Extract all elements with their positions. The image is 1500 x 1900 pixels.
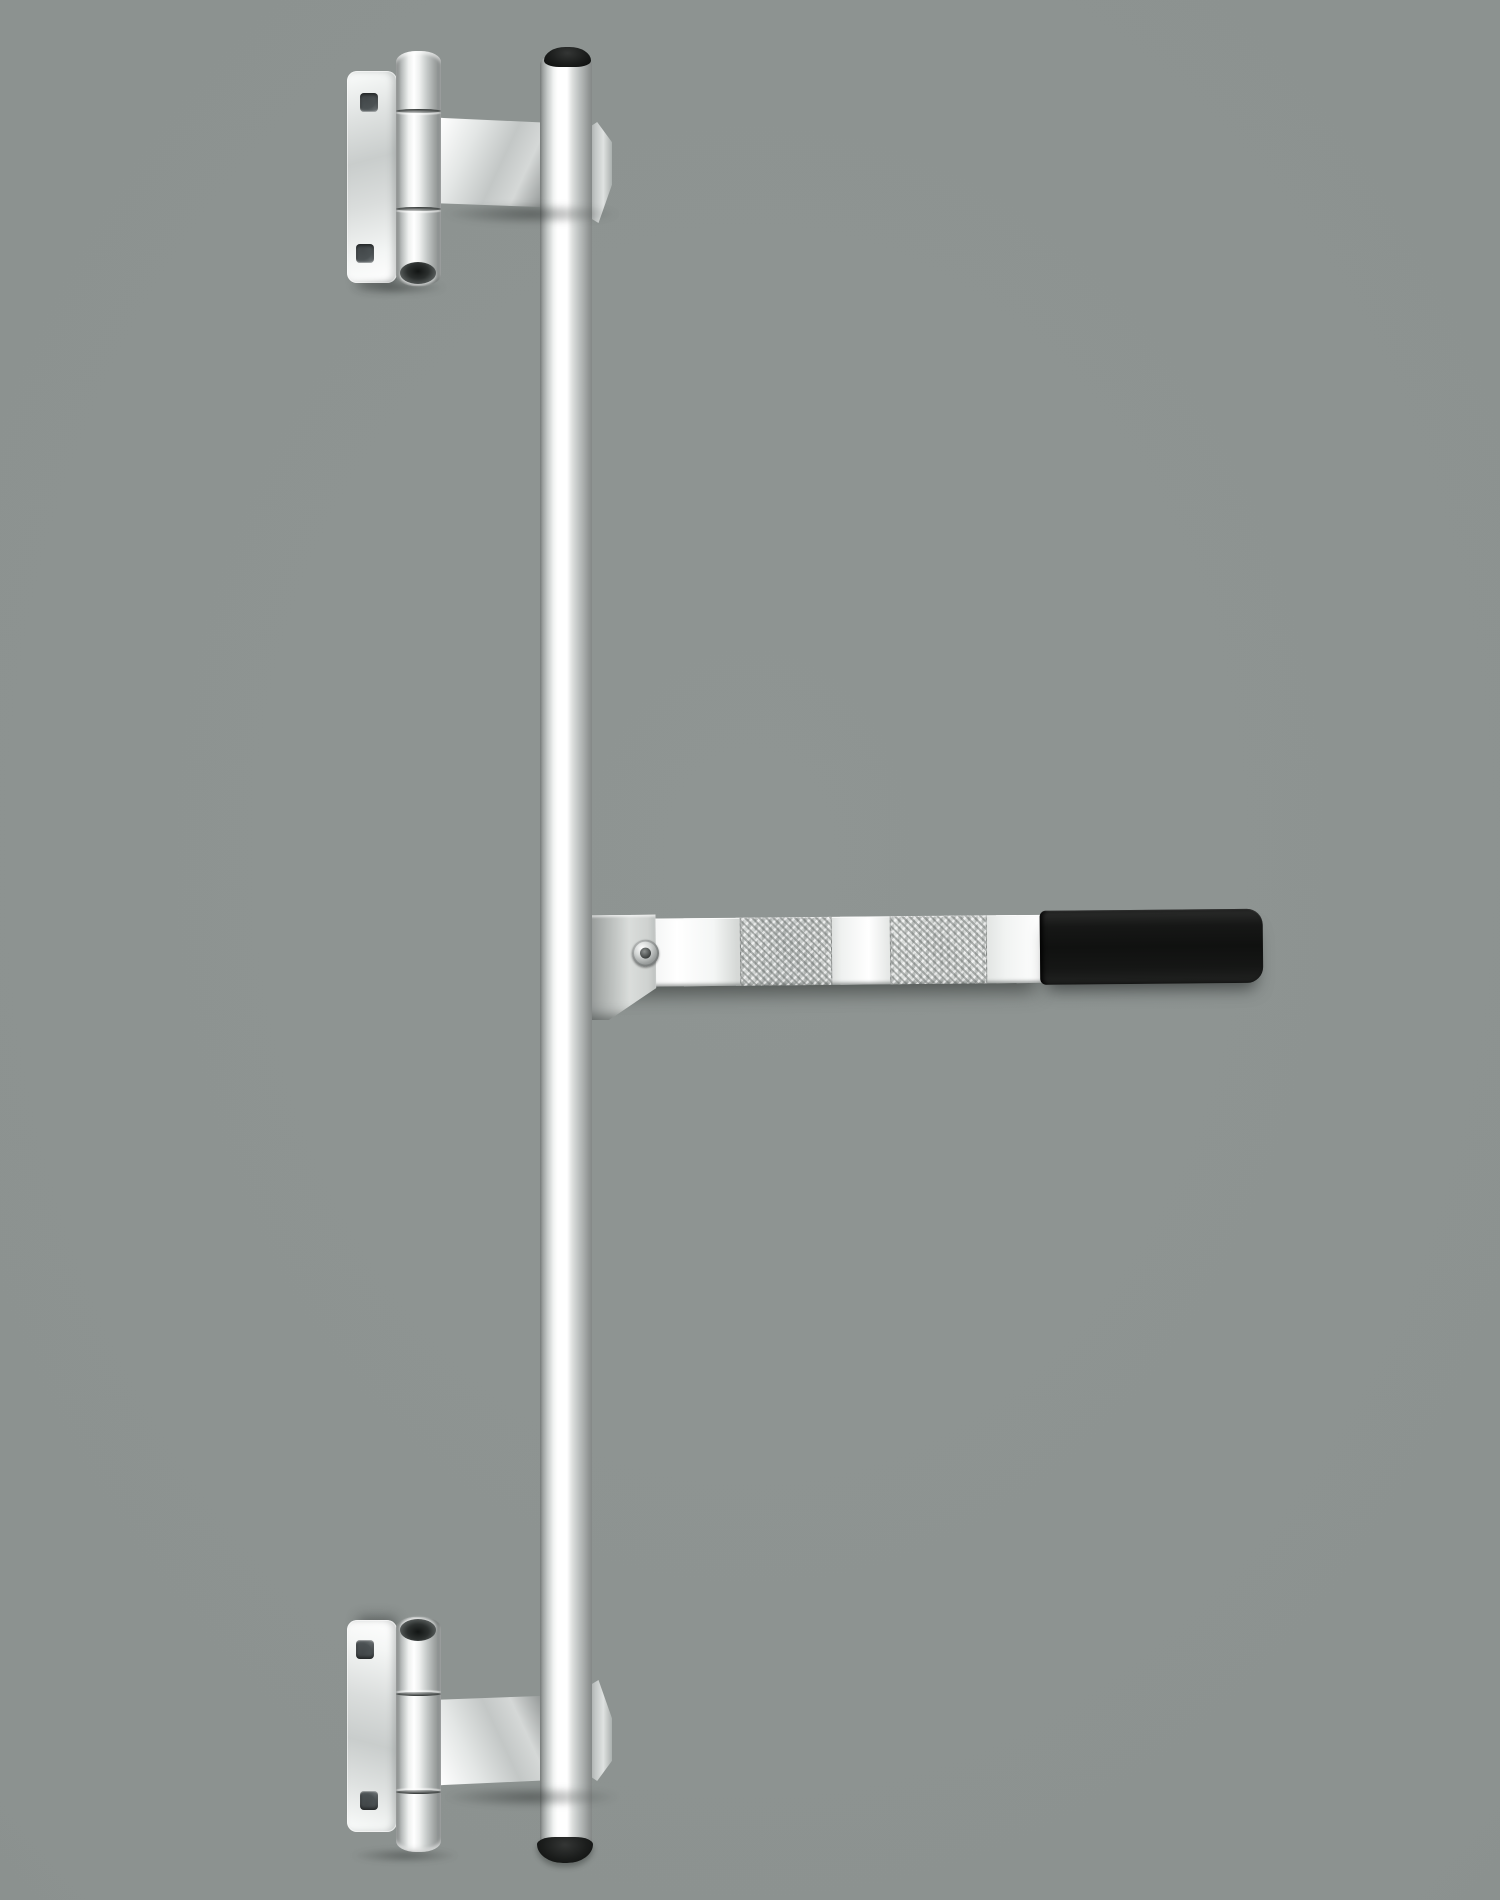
shadow-under-top-plate [350,280,446,295]
bottom-hinge-knuckle-seam-lower [396,1692,441,1696]
bottom-hinge-pin-socket [400,1619,436,1641]
top-hinge-bolt-hole-lower [356,244,374,263]
bottom-hinge-leaf-bracket [441,1696,540,1787]
lock-rod-tube [540,57,592,1848]
top-hinge-barrel [396,51,441,286]
top-hinge-bolt-hole-upper [360,93,378,112]
rod-end-cap-top [544,47,591,67]
handle-pivot-screw [632,939,659,966]
shadow-under-bottom-bracket [442,1786,620,1808]
top-hinge-mounting-plate [347,71,397,283]
locking-handle [586,909,1277,1026]
bottom-hinge-bolt-hole-upper [360,1791,378,1810]
top-hinge-knuckle-seam-lower [396,207,441,211]
product-photo-lock-rod-assembly [0,0,1500,1900]
handle-strap-galvanized-band-1 [740,917,833,986]
screw-center [640,948,651,959]
shadow-under-bottom-barrel [350,1848,460,1863]
top-hinge-knuckle-seam-upper [396,109,441,113]
handle-strap-galvanized-band-2 [890,915,988,984]
bottom-hinge-barrel [396,1617,441,1852]
handle-rod-bracket [586,915,657,1021]
handle-rubber-grip [1040,909,1264,985]
rod-end-cap-bottom [537,1837,593,1863]
top-hinge-leaf-bracket [441,116,540,207]
bottom-hinge-knuckle-seam-upper [396,1790,441,1794]
bottom-hinge-mounting-plate [347,1620,397,1832]
bottom-hinge-bolt-hole-lower [356,1640,374,1659]
shadow-under-top-bracket [442,203,620,225]
